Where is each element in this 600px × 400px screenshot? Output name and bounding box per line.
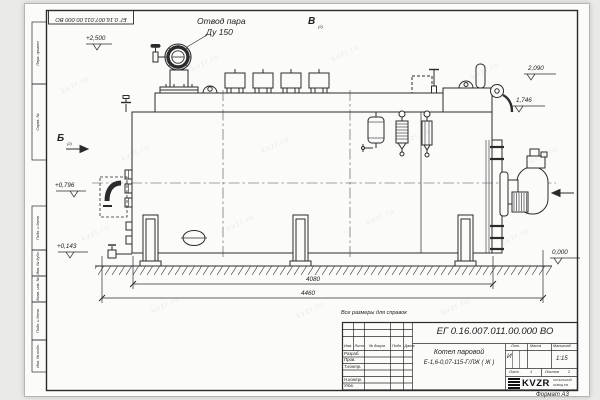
- elevation-platform: 1,746: [516, 98, 532, 104]
- steam-outlet-callout-line2: Ду 150: [206, 28, 233, 37]
- row-tkontr: Т.контр.: [344, 365, 361, 369]
- screenshot-root: { "meta": { "format_label": "Формат А3" …: [0, 0, 600, 400]
- margin-label-perv-primen: Перв. примен.: [37, 40, 41, 65]
- col-data: Дата: [405, 345, 415, 349]
- title-block-designation: ЕГ 0.16.007.011.00.000 ВО: [437, 327, 554, 337]
- lit-label: Лит.: [511, 345, 520, 349]
- scale-label: Масштаб: [553, 345, 571, 349]
- doc-name-line1: Котел паровой: [434, 349, 484, 356]
- sheets-label: Листов: [545, 371, 559, 375]
- margin-label-podp-data-2: Подп. и дата: [37, 309, 41, 333]
- lifting-lug: [203, 86, 217, 93]
- mass-label: Масса: [530, 345, 541, 349]
- col-podp: Подп.: [392, 345, 402, 349]
- kvzr-emblem-icon: [508, 378, 520, 389]
- dimension-lines: [99, 250, 546, 303]
- elevation-burner-axis: +0,796: [55, 183, 74, 189]
- col-dokum: № докум.: [369, 345, 386, 349]
- margin-label-inv-dubl: Инв. № дубл.: [37, 251, 41, 274]
- scale-value: 1:15: [556, 356, 568, 362]
- margin-label-vzam-inv: Взам. инв. №: [37, 277, 41, 300]
- top-designation-reversed: ЕГ 0.16.007.011.00.000 ВО: [55, 15, 126, 21]
- view-v-label: В: [308, 17, 315, 27]
- ground: [95, 266, 552, 275]
- reference-note: Все размеры для справок: [341, 311, 407, 317]
- dimension-shell-length: 4080: [306, 277, 320, 283]
- view-b-subscript: (2): [67, 142, 72, 146]
- kvzr-logo-sub2: ЗАВОД РФ: [553, 384, 568, 387]
- kvzr-logo-sub1: КОТЕЛЬНЫЙ: [553, 379, 572, 382]
- margin-label-podp-data-1: Подп. и дата: [37, 216, 41, 240]
- row-prov: Пров.: [344, 358, 355, 362]
- boiler-general-view-drawing: [0, 0, 600, 400]
- drum-hatch-covers: [225, 69, 329, 93]
- kvzr-logo-text: KVZR: [522, 379, 550, 389]
- sheet-value: 1: [530, 371, 532, 375]
- doc-name-line2: Е-1,6-0,07-115-Г/ЛЖ ( Ж ): [424, 360, 495, 366]
- sheets-value: 2: [568, 371, 570, 375]
- col-list: Лист: [355, 345, 365, 349]
- row-utv: Утв.: [344, 384, 354, 388]
- view-v-subscript: (2): [318, 25, 323, 29]
- front-end-fittings: [100, 96, 132, 259]
- sheet-label: Лист: [509, 371, 519, 375]
- view-b-label: Б: [57, 134, 64, 144]
- format-label: Формат А3: [536, 392, 569, 398]
- steam-outlet-callout-line1: Отвод пара: [197, 17, 246, 26]
- margin-label-sprav-no: Справ. №: [37, 113, 41, 130]
- lit-value: И: [507, 354, 512, 361]
- boiler-body: [132, 88, 502, 253]
- margin-label-inv-podl: Инв. № подл.: [37, 344, 41, 368]
- elevation-drain: +0,143: [57, 244, 76, 250]
- elevation-steam-outlet: +2,500: [86, 36, 105, 42]
- elevation-top: 2,090: [528, 66, 544, 72]
- dimension-overall-length: 4460: [301, 291, 315, 297]
- elevation-ground: 0,000: [552, 250, 568, 256]
- row-nkontr: Н.контр.: [344, 378, 362, 382]
- col-izm: Изм.: [344, 345, 352, 349]
- row-razrab: Разраб.: [344, 352, 360, 356]
